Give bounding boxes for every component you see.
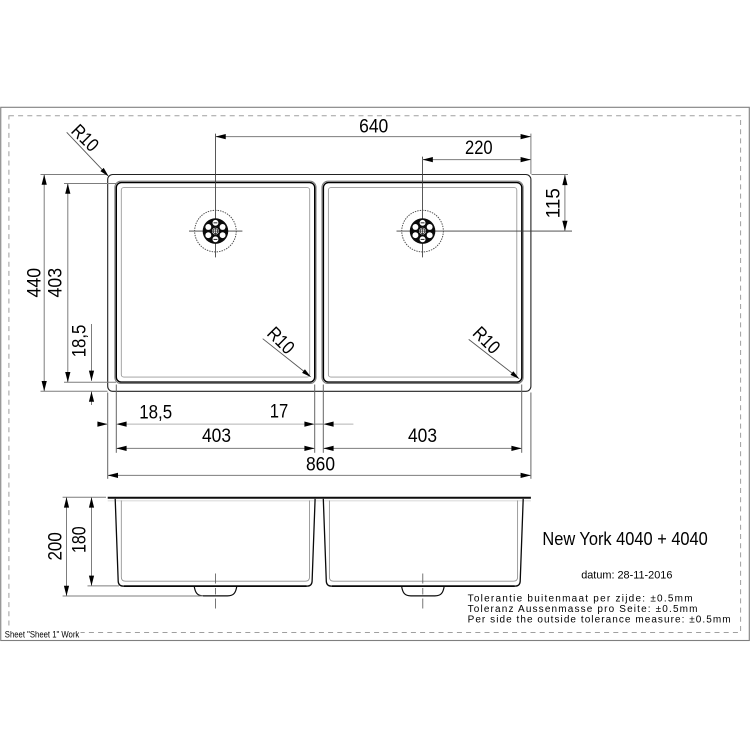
svg-text:Sheet "Sheet 1" Work: Sheet "Sheet 1" Work	[5, 630, 80, 640]
svg-text:403: 403	[46, 268, 67, 298]
svg-text:Toleranz Aussenmasse pro Seite: Toleranz Aussenmasse pro Seite: ±0.5mm	[468, 604, 698, 615]
svg-text:440: 440	[25, 268, 46, 298]
svg-text:220: 220	[465, 138, 493, 159]
svg-text:640: 640	[359, 117, 388, 138]
svg-text:Tolerantie buitenmaat per zijd: Tolerantie buitenmaat per zijde: ±0.5mm	[468, 594, 693, 605]
svg-text:403: 403	[202, 426, 231, 447]
svg-text:datum: 28-11-2016: datum: 28-11-2016	[581, 569, 672, 581]
svg-text:860: 860	[306, 455, 335, 476]
svg-text:403: 403	[408, 426, 437, 447]
svg-text:Per side the outside tolerance: Per side the outside tolerance measure: …	[468, 615, 731, 626]
svg-text:New York 4040 + 4040: New York 4040 + 4040	[542, 528, 707, 549]
svg-text:18,5: 18,5	[139, 402, 172, 423]
svg-text:180: 180	[70, 526, 91, 553]
svg-text:R10: R10	[67, 121, 103, 157]
svg-text:R10: R10	[468, 323, 504, 359]
svg-text:R10: R10	[262, 323, 298, 359]
svg-text:17: 17	[270, 402, 289, 423]
svg-text:200: 200	[45, 532, 66, 560]
svg-text:18,5: 18,5	[70, 325, 91, 358]
svg-text:115: 115	[543, 188, 564, 218]
